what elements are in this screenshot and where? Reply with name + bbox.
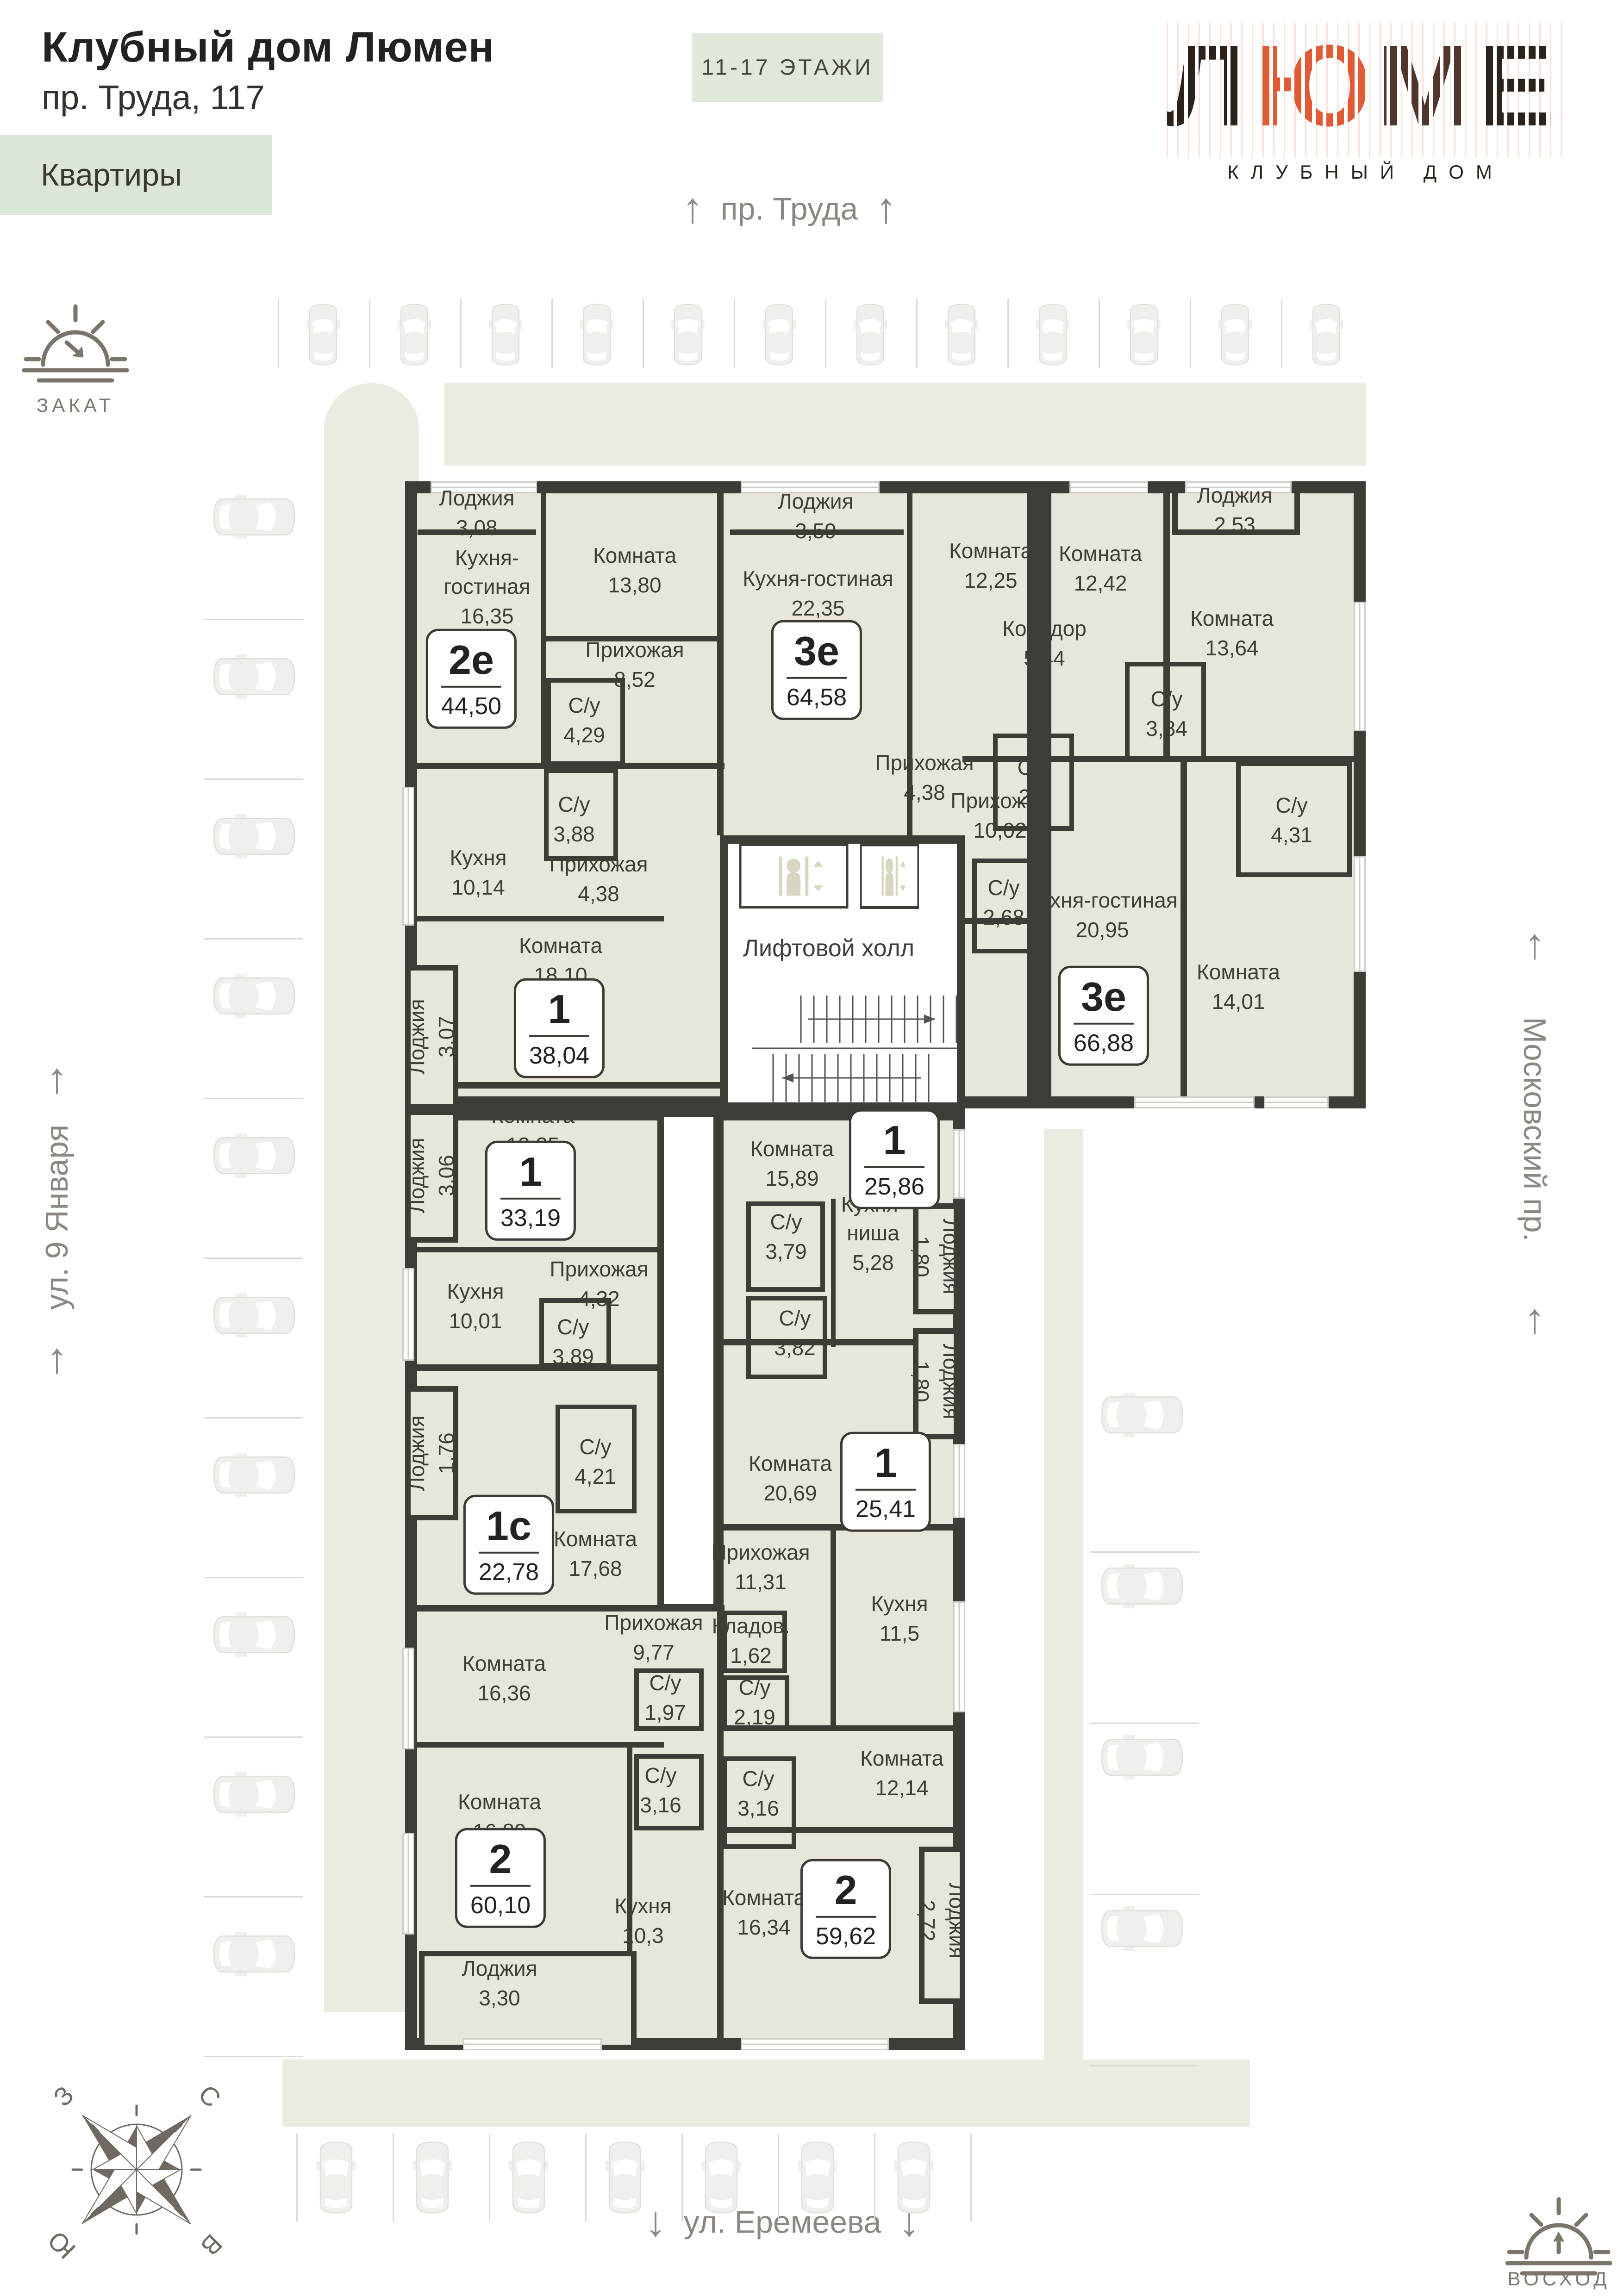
window bbox=[953, 1444, 965, 1518]
room-label: Комната12,42 bbox=[1059, 539, 1142, 597]
apartment-badge[interactable]: 1с22,78 bbox=[463, 1495, 554, 1595]
room-label: Кухня10,14 bbox=[450, 843, 506, 902]
room-label: С/у3,82 bbox=[774, 1304, 816, 1362]
floorplan-page: Клубный дом Люмен пр. Труда, 117 Квартир… bbox=[0, 0, 1624, 2296]
apartment-badge[interactable]: 259,62 bbox=[800, 1859, 891, 1959]
room-label: Комната12,14 bbox=[860, 1744, 943, 1802]
apartment-badge[interactable]: 133,19 bbox=[485, 1141, 576, 1241]
room-label: Комната12,25 bbox=[949, 536, 1032, 595]
window bbox=[463, 2038, 602, 2050]
room-label: Кухня-гостиная22,35 bbox=[675, 564, 962, 622]
window bbox=[953, 1601, 965, 1712]
wall bbox=[405, 1247, 664, 1252]
room-label: С/у3,79 bbox=[765, 1207, 807, 1266]
stairs bbox=[725, 993, 958, 1106]
room-label: Комната17,68 bbox=[554, 1524, 637, 1583]
room-label: С/у1,97 bbox=[644, 1668, 686, 1727]
room-label: Прихожая10,02 bbox=[950, 786, 1049, 845]
wall bbox=[831, 1527, 836, 1725]
apartment-badge[interactable]: 2е44,50 bbox=[426, 629, 517, 729]
window bbox=[402, 1268, 414, 1361]
cars-bottom-row bbox=[317, 2142, 934, 2213]
room-label: Лоджия3,30 bbox=[462, 1954, 537, 2012]
room-label: Лоджия1,76 bbox=[402, 1416, 461, 1491]
room-label: Коридор5,44 bbox=[1002, 614, 1087, 672]
window bbox=[402, 1648, 414, 1749]
window bbox=[1354, 856, 1366, 972]
window bbox=[402, 1833, 414, 1935]
wall bbox=[405, 1742, 664, 1748]
room-label: Лоджия3,59 bbox=[778, 487, 854, 545]
room-label: Прихожая8,52 bbox=[585, 635, 684, 694]
room-label: Прихожая11,31 bbox=[711, 1538, 810, 1596]
room-label: Прихожая4,32 bbox=[550, 1255, 648, 1313]
room-label: Кухня-гостиная20,95 bbox=[959, 886, 1246, 944]
wall bbox=[1294, 481, 1300, 535]
apartment-badge[interactable]: 125,86 bbox=[849, 1109, 940, 1209]
window bbox=[402, 787, 414, 926]
window bbox=[1264, 1096, 1329, 1108]
room-label: Кладов.1,62 bbox=[712, 1612, 790, 1670]
room-label: Лоджия1,80 bbox=[907, 1344, 965, 1419]
room-label: Прихожая9,77 bbox=[604, 1608, 703, 1667]
elevator-icon bbox=[739, 843, 849, 909]
room-label: Комната14,01 bbox=[1197, 958, 1280, 1016]
apartment-badge[interactable]: 125,41 bbox=[840, 1432, 931, 1532]
apartment-badge[interactable]: 138,04 bbox=[514, 978, 605, 1078]
corridor bbox=[657, 1111, 720, 1611]
room-label: Лоджия3,08 bbox=[439, 484, 515, 542]
room-label: С/у4,21 bbox=[575, 1432, 616, 1491]
room-label: Лоджия1,80 bbox=[907, 1219, 965, 1294]
room-label: Кухня11,5 bbox=[871, 1589, 928, 1648]
room-label: С/у3,89 bbox=[552, 1313, 594, 1371]
room-label: Комната20,69 bbox=[749, 1449, 832, 1507]
room-label: С/у4,29 bbox=[563, 691, 605, 749]
room-label: Кухня-гостиная16,35 bbox=[422, 543, 552, 630]
wall bbox=[405, 1364, 664, 1371]
cars-right-column bbox=[1102, 1393, 1182, 1951]
window bbox=[1069, 481, 1148, 493]
room-label: Лоджия3,06 bbox=[402, 1138, 461, 1213]
window bbox=[741, 2038, 889, 2050]
elevator-icon bbox=[860, 843, 919, 909]
room-label: С/у3,16 bbox=[737, 1764, 779, 1823]
room-label: Комната16,36 bbox=[462, 1649, 546, 1707]
window bbox=[953, 1129, 965, 1199]
apartment-badge[interactable]: 3е66,88 bbox=[1058, 966, 1149, 1066]
room-label: Прихожая4,38 bbox=[549, 850, 648, 908]
lift-hall-label: Лифтовой холл bbox=[743, 934, 914, 962]
room-label: Кухня10,3 bbox=[614, 1892, 671, 1950]
apartment-badge[interactable]: 3е64,58 bbox=[771, 620, 862, 720]
room-label: Кухня10,01 bbox=[447, 1277, 504, 1335]
cars-left-column bbox=[214, 495, 294, 1976]
room-label: С/у3,88 bbox=[553, 790, 595, 848]
room-label: Комната13,64 bbox=[1190, 604, 1274, 662]
wall bbox=[717, 481, 724, 835]
room-label: Комната16,34 bbox=[722, 1883, 806, 1941]
room-label: С/у3,84 bbox=[1146, 684, 1187, 743]
room-label: Лоджия3,07 bbox=[402, 999, 461, 1075]
room-label: Лоджия2,53 bbox=[1197, 481, 1273, 539]
window bbox=[1354, 602, 1366, 731]
room-label: С/у2,19 bbox=[734, 1673, 775, 1731]
cars-top-row bbox=[306, 305, 1343, 365]
room-label: Комната15,89 bbox=[750, 1134, 834, 1193]
wall bbox=[405, 916, 664, 921]
wall bbox=[1172, 481, 1178, 535]
room-label: Комната13,80 bbox=[593, 541, 676, 599]
room-label: С/у4,31 bbox=[1271, 791, 1312, 849]
apartment-badge[interactable]: 260,10 bbox=[455, 1828, 546, 1928]
room-label: Лоджия2,72 bbox=[913, 1883, 971, 1959]
window bbox=[1134, 1096, 1255, 1108]
room-label: С/у3,16 bbox=[640, 1761, 681, 1819]
